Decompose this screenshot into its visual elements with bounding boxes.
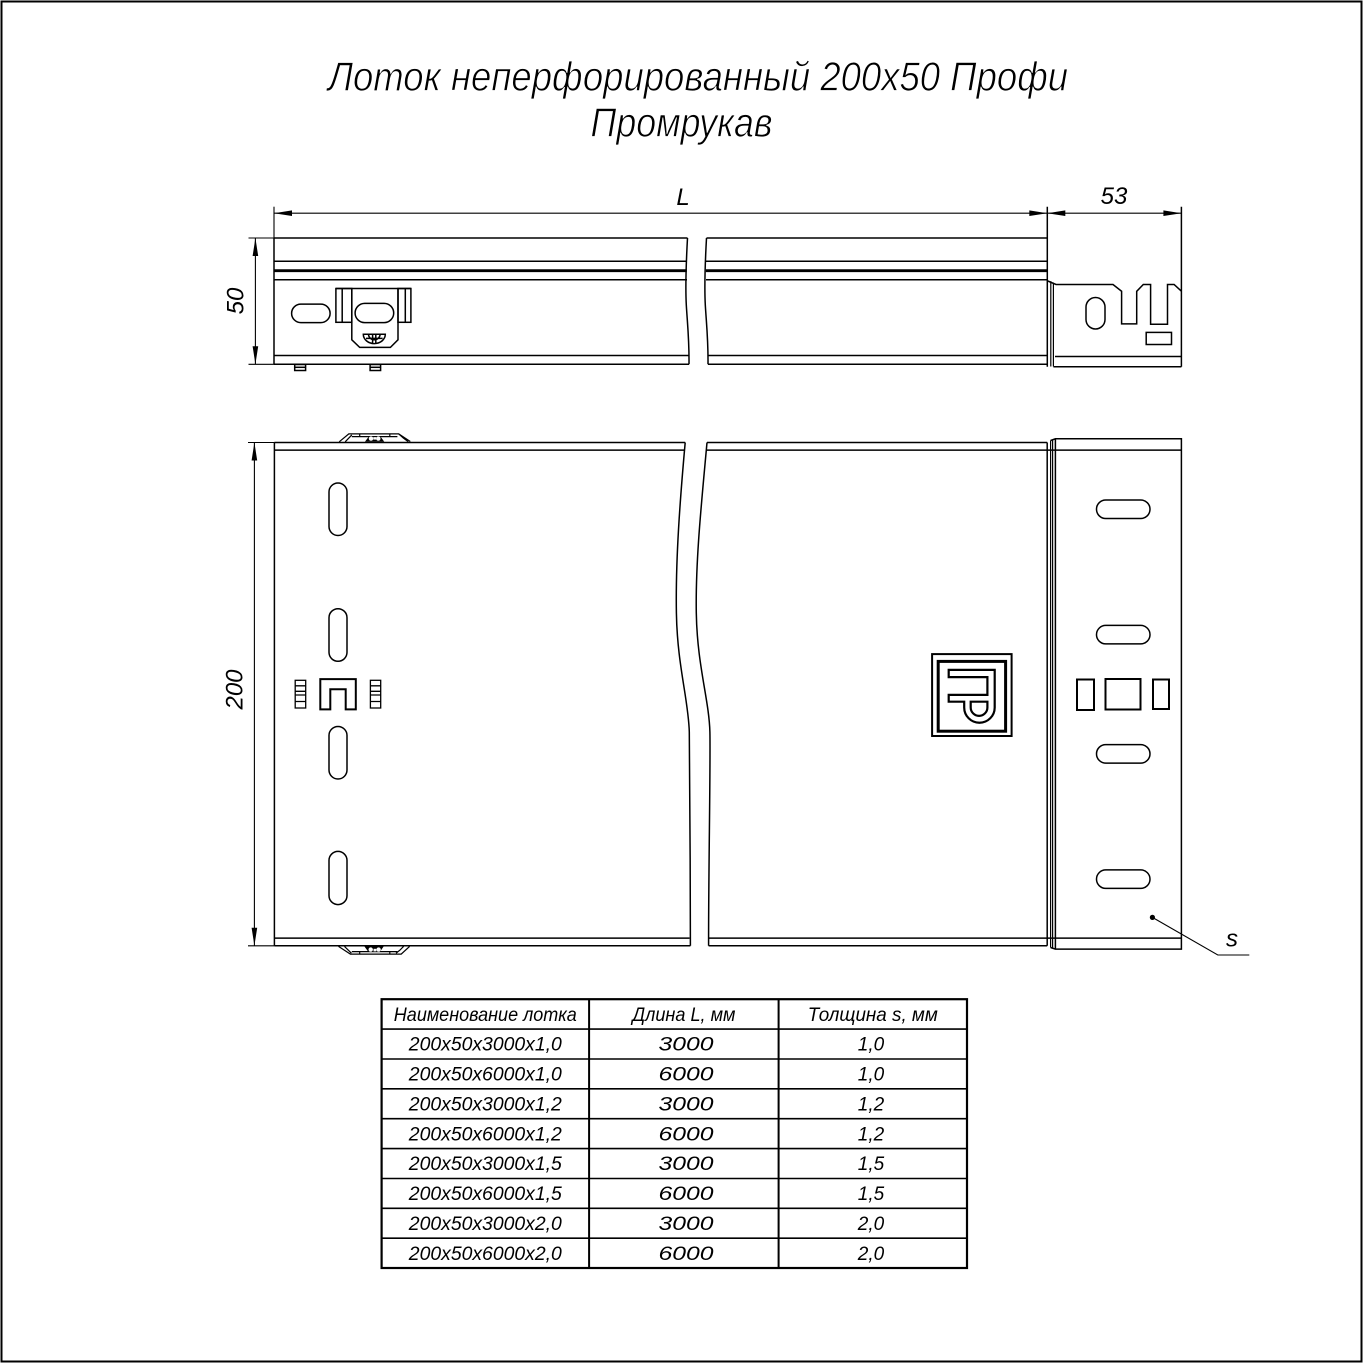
svg-text:53: 53 — [1101, 183, 1128, 210]
svg-text:200х50х6000х1,2: 200х50х6000х1,2 — [408, 1124, 562, 1145]
svg-text:3000: 3000 — [659, 1035, 715, 1056]
svg-text:1,5: 1,5 — [858, 1184, 885, 1205]
svg-text:200х50х6000х1,5: 200х50х6000х1,5 — [408, 1184, 562, 1205]
svg-text:3000: 3000 — [659, 1154, 715, 1175]
svg-text:200: 200 — [222, 669, 249, 711]
svg-text:Лоток неперфорированный 200х50: Лоток неперфорированный 200х50 Профи — [325, 53, 1068, 99]
svg-text:Наименование лотка: Наименование лотка — [394, 1005, 577, 1026]
svg-text:200х50х3000х1,0: 200х50х3000х1,0 — [408, 1035, 562, 1056]
svg-text:200х50х6000х2,0: 200х50х6000х2,0 — [408, 1244, 562, 1265]
svg-text:Толщина s, мм: Толщина s, мм — [808, 1005, 938, 1026]
svg-text:1,2: 1,2 — [858, 1094, 885, 1115]
svg-text:1,2: 1,2 — [858, 1124, 885, 1145]
svg-text:L: L — [676, 184, 689, 211]
svg-text:1,0: 1,0 — [858, 1065, 885, 1086]
svg-text:1,0: 1,0 — [858, 1035, 885, 1056]
svg-text:200х50х6000х1,0: 200х50х6000х1,0 — [408, 1065, 562, 1086]
svg-text:2,0: 2,0 — [857, 1244, 885, 1265]
svg-text:50: 50 — [223, 287, 250, 314]
svg-text:6000: 6000 — [659, 1124, 715, 1145]
svg-text:1,5: 1,5 — [858, 1154, 885, 1175]
svg-text:200х50х3000х2,0: 200х50х3000х2,0 — [408, 1214, 562, 1235]
svg-text:6000: 6000 — [659, 1184, 715, 1205]
svg-text:s: s — [1226, 926, 1238, 953]
svg-text:Длина L, мм: Длина L, мм — [630, 1005, 735, 1026]
svg-text:6000: 6000 — [659, 1065, 715, 1086]
svg-text:200х50х3000х1,5: 200х50х3000х1,5 — [408, 1154, 562, 1175]
svg-text:2,0: 2,0 — [857, 1214, 885, 1235]
svg-text:6000: 6000 — [659, 1244, 715, 1265]
svg-text:3000: 3000 — [659, 1094, 715, 1115]
svg-text:3000: 3000 — [659, 1214, 715, 1235]
svg-text:200х50х3000х1,2: 200х50х3000х1,2 — [408, 1094, 562, 1115]
svg-text:Промрукав: Промрукав — [591, 100, 773, 146]
